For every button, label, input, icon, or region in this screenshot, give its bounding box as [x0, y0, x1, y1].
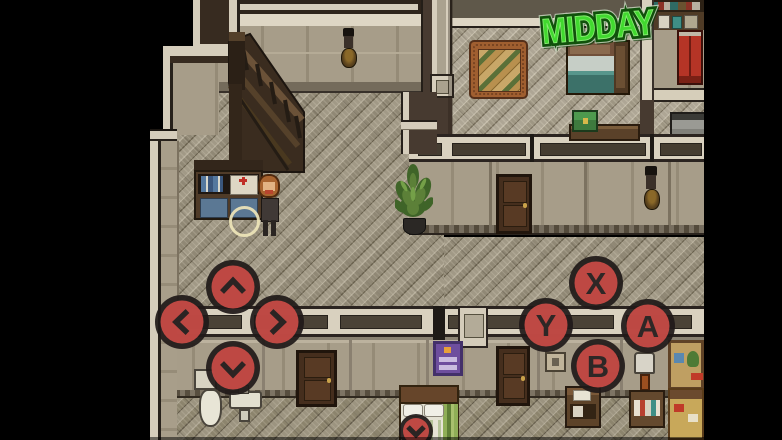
svg-text:Y: Y [536, 308, 557, 343]
svg-text:B: B [587, 349, 609, 384]
svg-text:A: A [637, 309, 659, 344]
svg-text:X: X [586, 266, 607, 301]
